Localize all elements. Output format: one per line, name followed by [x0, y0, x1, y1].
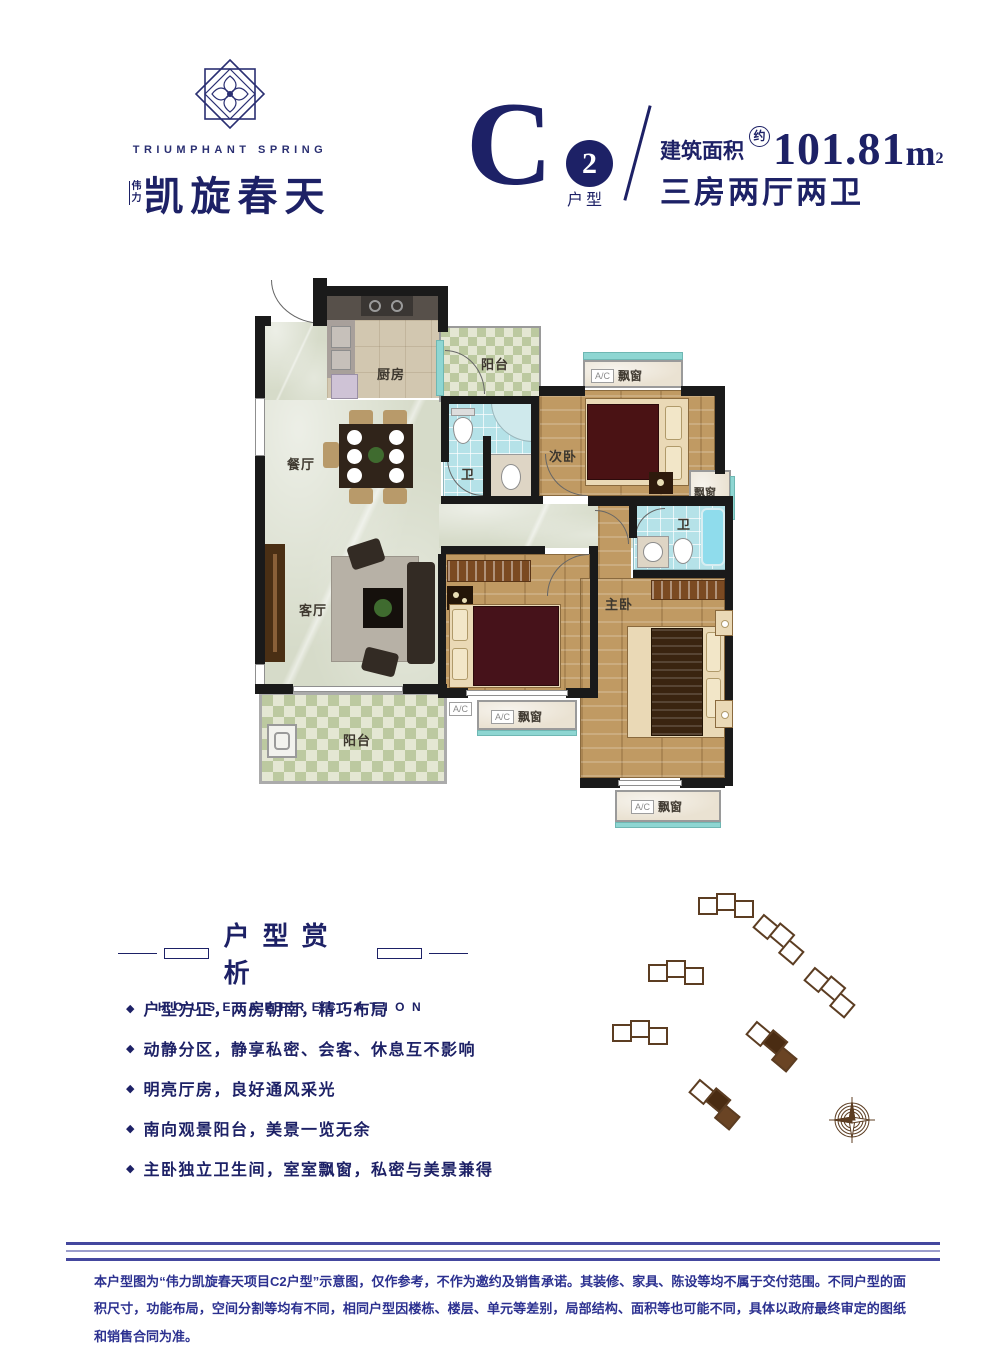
wall	[725, 496, 733, 578]
area-approx-badge: 约	[749, 126, 770, 147]
wall	[715, 386, 725, 474]
kitchen-sink	[331, 326, 351, 348]
top-balcony-label: 阳台	[481, 354, 509, 373]
footer-divider-middle	[66, 1250, 940, 1252]
site-building	[612, 1020, 666, 1045]
wall	[539, 386, 585, 396]
footer-divider-top	[66, 1242, 940, 1245]
brand-name-cn: 凯旋春天	[144, 164, 332, 222]
tv-cabinet	[265, 544, 285, 662]
wall	[629, 504, 637, 538]
layout-description: 三房两厅两卫	[660, 167, 864, 212]
wall	[633, 570, 733, 578]
dining-floor	[263, 322, 327, 402]
site-building	[750, 911, 807, 965]
brand-emblem-icon	[194, 58, 266, 130]
bullet-text: 南向观景阳台，美景一览无余	[143, 1116, 371, 1140]
second-bedroom-label: 次卧	[549, 446, 577, 465]
appreciation-title-row: 户型赏析	[118, 916, 468, 990]
wall	[483, 436, 491, 502]
wall	[725, 636, 733, 700]
bay-window-label: 飘窗	[658, 798, 682, 815]
wall	[580, 778, 620, 788]
diamond-bullet-icon: ◆	[126, 1122, 134, 1135]
title-deco-line	[118, 953, 157, 954]
bathtub	[701, 508, 725, 566]
kitchen-balcony-window	[436, 340, 444, 396]
list-item: ◆南向观景阳台，美景一览无余	[126, 1116, 493, 1140]
area-label: 建筑面积	[660, 135, 744, 168]
wall	[680, 778, 725, 788]
area-value: 101.81	[773, 129, 906, 168]
dining-label: 餐厅	[287, 454, 315, 473]
pillow	[452, 648, 468, 680]
bedroom2-wardrobe	[447, 560, 531, 582]
ac-badge: A/C	[631, 800, 654, 814]
dining-chair	[349, 488, 373, 504]
second-bedroom-bay-glass	[583, 352, 683, 360]
brand-prefix: 伟力	[129, 181, 144, 205]
dining-chair	[323, 442, 339, 468]
pillow	[452, 609, 468, 641]
list-item: ◆主卧独立卫生间，室室飘窗，私密与美景兼得	[126, 1156, 493, 1180]
brand-name-en: TRIUMPHANT SPRING	[120, 144, 340, 156]
wall	[441, 404, 449, 462]
title-deco-cap	[377, 948, 422, 959]
nightstand	[649, 472, 673, 494]
wall	[323, 286, 448, 296]
bath1-basin	[501, 464, 521, 490]
bullet-text: 户型方正，两房朝南，精巧布局	[143, 996, 388, 1020]
bay-sill	[715, 610, 733, 636]
master-wardrobe	[651, 580, 725, 600]
coffee-table	[363, 588, 403, 628]
window	[466, 690, 568, 696]
ac-badge: A/C	[449, 702, 472, 716]
site-building-highlighted	[686, 1076, 743, 1130]
wall	[566, 688, 598, 698]
master-bath-label: 卫	[677, 514, 691, 533]
wall	[588, 496, 725, 506]
living-label: 客厅	[299, 600, 327, 619]
site-plan-sketch	[590, 870, 970, 1170]
header-slash-divider	[623, 105, 651, 200]
list-item: ◆明亮厅房，良好通风采光	[126, 1076, 493, 1100]
bedroom2-bay-glass	[477, 730, 577, 736]
disclaimer-text: 本户型图为“伟力凯旋春天项目C2户型”示意图，仅作参考，不作为邀约及销售承诺。其…	[94, 1268, 906, 1350]
sofa	[407, 562, 435, 664]
brand-logo: TRIUMPHANT SPRING 伟力 凯旋春天	[120, 58, 340, 222]
fridge	[331, 374, 358, 399]
site-building	[801, 964, 858, 1018]
wall	[255, 316, 271, 326]
bullet-text: 主卧独立卫生间，室室飘窗，私密与美景兼得	[143, 1156, 493, 1180]
kitchen-sink-2	[331, 350, 351, 370]
wall	[725, 728, 733, 786]
floorplan-poster: { "brand": { "logo_en": "TRIUMPHANT SPRI…	[0, 0, 1000, 1357]
appreciation-title: 户型赏析	[224, 916, 369, 990]
window	[293, 686, 403, 692]
toilet-tank	[451, 408, 475, 416]
master-bed	[651, 628, 703, 736]
floor-plan: 厨房 阳台 卫 次卧 A/C 飘窗 飘窗 卫	[253, 278, 745, 844]
ac-badge: A/C	[591, 369, 614, 383]
kitchen-label: 厨房	[377, 364, 405, 383]
unit-type-suffix: 户型	[567, 186, 605, 210]
wall	[441, 546, 545, 554]
building-area-row: 建筑面积 约 101.81 m 2	[660, 126, 944, 168]
window	[618, 780, 682, 786]
dining-chair	[383, 488, 407, 504]
wall	[441, 496, 543, 504]
pillow	[706, 632, 721, 672]
bottom-balcony-label: 阳台	[343, 730, 371, 749]
site-building-highlighted	[743, 1018, 800, 1072]
washing-machine	[267, 724, 297, 758]
bay-window-label: 飘窗	[618, 367, 642, 384]
pillow	[665, 406, 682, 440]
compass-icon	[828, 1096, 876, 1144]
wall	[255, 326, 265, 398]
diamond-bullet-icon: ◆	[126, 1042, 134, 1055]
master-bay-glass	[615, 822, 721, 828]
bedroom2-bed	[473, 606, 559, 686]
bullet-text: 动静分区，静享私密、会客、休息互不影响	[143, 1036, 476, 1060]
site-building	[648, 960, 702, 985]
wall	[589, 546, 598, 554]
wall	[255, 456, 265, 664]
site-building	[698, 893, 752, 918]
master-basin	[643, 542, 663, 562]
stove	[361, 296, 413, 316]
wall	[255, 684, 293, 694]
master-bedroom-label: 主卧	[605, 594, 633, 613]
bay-sill	[715, 700, 733, 728]
area-exponent: 2	[936, 150, 944, 168]
wall	[438, 554, 446, 692]
wall	[590, 554, 598, 694]
diamond-bullet-icon: ◆	[126, 1162, 134, 1175]
unit-type-letter: C	[466, 90, 553, 198]
wall	[531, 396, 539, 504]
window	[255, 398, 265, 456]
wall	[403, 684, 447, 694]
wall	[441, 396, 539, 404]
second-bedroom-bed	[587, 404, 659, 480]
title-deco-line	[429, 953, 468, 954]
bullet-text: 明亮厅房，良好通风采光	[143, 1076, 336, 1100]
list-item: ◆户型方正，两房朝南，精巧布局	[126, 996, 493, 1020]
dining-table	[339, 424, 413, 488]
title-deco-cap	[164, 948, 209, 959]
list-item: ◆动静分区，静享私密、会客、休息互不影响	[126, 1036, 493, 1060]
appreciation-bullets: ◆户型方正，两房朝南，精巧布局 ◆动静分区，静享私密、会客、休息互不影响 ◆明亮…	[126, 996, 493, 1196]
diamond-bullet-icon: ◆	[126, 1002, 134, 1015]
bath1-label: 卫	[461, 464, 475, 483]
ac-badge: A/C	[491, 710, 514, 724]
wall	[438, 286, 448, 332]
bay-window-label: 飘窗	[518, 708, 542, 725]
unit-type-number-badge: 2	[566, 140, 613, 187]
diamond-bullet-icon: ◆	[126, 1082, 134, 1095]
area-unit: m	[906, 139, 936, 168]
footer-divider-bottom	[66, 1258, 940, 1261]
